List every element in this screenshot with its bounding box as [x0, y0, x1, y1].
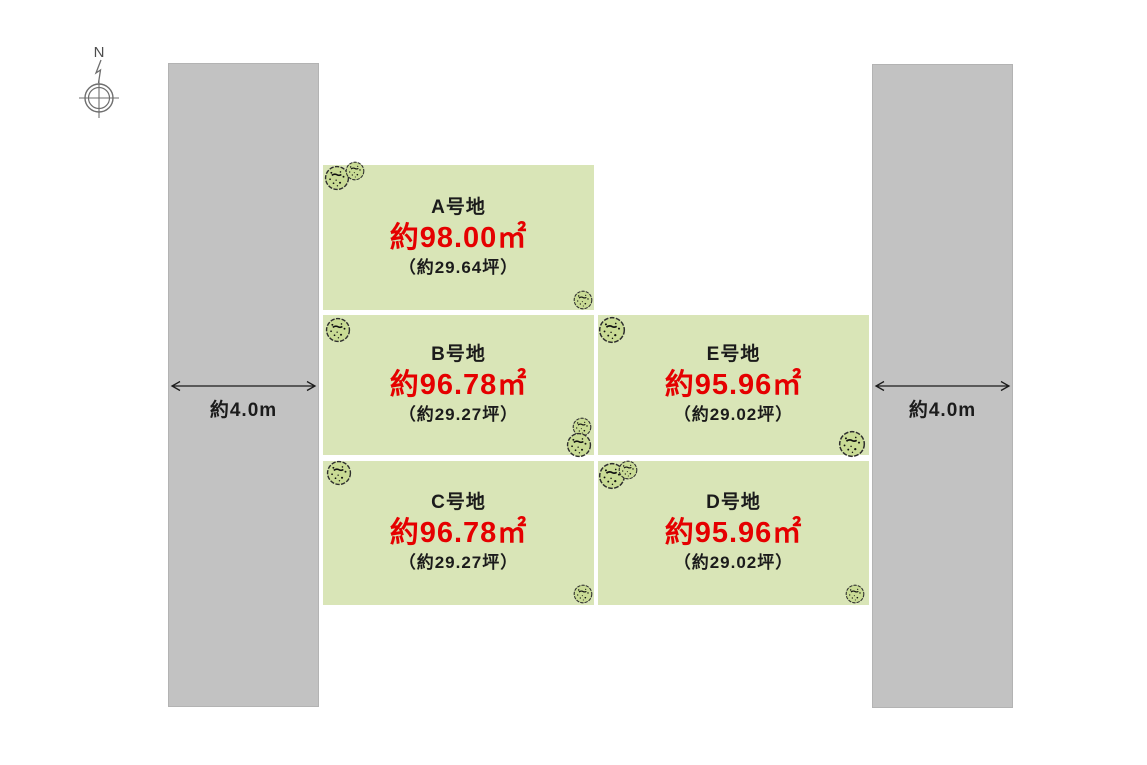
plot-tsubo: （約29.02坪） [674, 553, 794, 573]
plot-tsubo: （約29.27坪） [399, 405, 519, 425]
plot-name: E号地 [707, 345, 761, 366]
tree-icon [566, 432, 592, 458]
plot-tsubo: （約29.64坪） [399, 258, 519, 278]
tree-icon [325, 317, 351, 343]
plot-area: 約95.96㎡ [665, 517, 803, 550]
land-plot-diagram: N 約4.0m 約4.0m A号地 約98.0 [0, 0, 1147, 765]
plot-c: C号地 約96.78㎡ （約29.27坪） [323, 461, 594, 605]
road-width-label: 約4.0m [873, 395, 1012, 422]
plot-b: B号地 約96.78㎡ （約29.27坪） [323, 315, 594, 455]
tree-icon [838, 430, 866, 458]
plot-name: A号地 [431, 198, 486, 219]
tree-icon [598, 316, 626, 344]
road-width-label: 約4.0m [169, 395, 318, 422]
plot-name: B号地 [431, 345, 486, 366]
plot-name: C号地 [431, 493, 486, 514]
plot-area: 約95.96㎡ [665, 369, 803, 402]
plot-tsubo: （約29.27坪） [399, 553, 519, 573]
double-headed-arrow-icon [873, 380, 1012, 392]
plot-d: D号地 約95.96㎡ （約29.02坪） [598, 461, 869, 605]
north-compass-icon: N [70, 40, 128, 132]
compass-n-label: N [94, 44, 105, 61]
tree-icon [573, 584, 593, 604]
tree-icon [845, 584, 865, 604]
plot-area: 約96.78㎡ [390, 517, 528, 550]
road-left: 約4.0m [168, 63, 319, 707]
tree-icon [618, 460, 638, 480]
plot-area: 約96.78㎡ [390, 369, 528, 402]
double-headed-arrow-icon [169, 380, 318, 392]
plot-e: E号地 約95.96㎡ （約29.02坪） [598, 315, 869, 455]
plot-tsubo: （約29.02坪） [674, 405, 794, 425]
plot-a: A号地 約98.00㎡ （約29.64坪） [323, 165, 594, 310]
road-right: 約4.0m [872, 64, 1013, 708]
tree-icon [326, 460, 352, 486]
plot-area: 約98.00㎡ [390, 222, 528, 255]
plot-name: D号地 [706, 493, 761, 514]
tree-icon [573, 290, 593, 310]
tree-icon [345, 161, 365, 181]
